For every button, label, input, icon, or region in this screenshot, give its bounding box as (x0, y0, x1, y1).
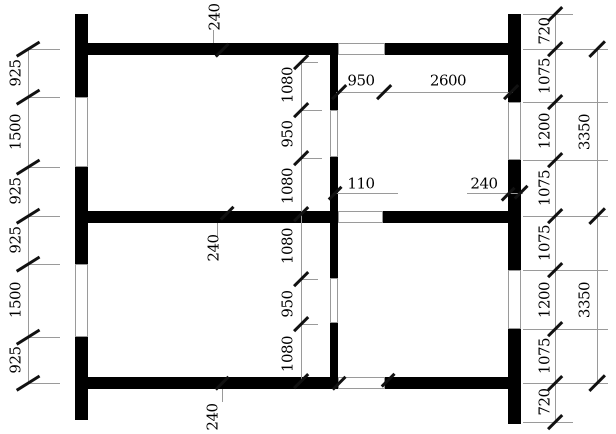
dimension-label: 1080 (281, 168, 296, 204)
extension-line (336, 92, 513, 93)
dimension-label: 950 (281, 120, 296, 147)
dimension-line (222, 389, 223, 402)
wall-segment (75, 14, 88, 97)
extension-line (301, 110, 322, 111)
dimension-label: 1075 (538, 58, 553, 94)
dimension-label: 720 (538, 388, 553, 415)
extension-line (28, 337, 60, 338)
dimension-label: 925 (9, 59, 24, 86)
extension-line (28, 216, 60, 217)
extension-line (523, 102, 608, 103)
wall-segment (75, 43, 338, 55)
extension-line (301, 158, 322, 159)
extension-line (301, 279, 318, 280)
dimension-label: 1075 (538, 338, 553, 374)
extension-line (523, 14, 573, 15)
dimension-label: 1500 (9, 282, 24, 318)
dimension-line (213, 30, 214, 43)
window-opening (330, 110, 338, 157)
dimension-label: 1200 (538, 113, 553, 149)
dimension-label: 240 (207, 234, 222, 261)
dimension-label: 110 (347, 177, 374, 192)
dimension-label: 1080 (281, 228, 296, 264)
extension-line (523, 270, 608, 271)
extension-line (523, 329, 608, 330)
window-opening (338, 211, 383, 223)
extension-line (28, 383, 60, 384)
dimension-label: 3350 (578, 114, 593, 150)
dimension-label: 240 (206, 403, 221, 430)
wall-segment (385, 377, 521, 389)
dimension-line (555, 14, 556, 422)
wall-segment (330, 43, 338, 110)
dimension-label: 950 (281, 290, 296, 317)
window-opening (508, 102, 521, 160)
extension-line (28, 49, 60, 50)
dimension-label: 925 (9, 346, 24, 373)
wall-segment (330, 323, 338, 389)
extension-line (333, 193, 398, 194)
window-opening (75, 97, 88, 167)
window-opening (508, 270, 521, 329)
window-opening (75, 264, 88, 337)
extension-line (467, 193, 523, 194)
wall-segment (383, 211, 521, 223)
extension-line (28, 264, 60, 265)
wall-segment (385, 43, 521, 55)
extension-line (301, 62, 318, 63)
dimension-label: 1080 (281, 336, 296, 372)
wall-segment (330, 157, 338, 278)
extension-line (523, 422, 573, 423)
extension-line (523, 160, 608, 161)
dimension-label: 1075 (538, 225, 553, 261)
dimension-label: 1080 (281, 67, 296, 103)
dimension-label: 1200 (538, 282, 553, 318)
dimension-label: 1075 (538, 170, 553, 206)
dimension-label: 3350 (578, 282, 593, 318)
window-opening (330, 278, 338, 323)
extension-line (28, 97, 60, 98)
window-opening (338, 377, 385, 389)
dimension-label: 950 (347, 74, 374, 89)
window-opening (338, 43, 385, 55)
dimension-label: 925 (9, 226, 24, 253)
extension-line (28, 167, 60, 168)
dimension-label: 240 (470, 177, 497, 192)
dimension-label: 240 (208, 3, 223, 30)
dimension-label: 2600 (430, 74, 466, 89)
floor-plan: 9251500925925150092510809501080108095010… (0, 0, 616, 434)
dimension-label: 720 (538, 17, 553, 44)
dimension-label: 925 (9, 177, 24, 204)
dimension-label: 1500 (9, 114, 24, 150)
extension-line (301, 324, 318, 325)
